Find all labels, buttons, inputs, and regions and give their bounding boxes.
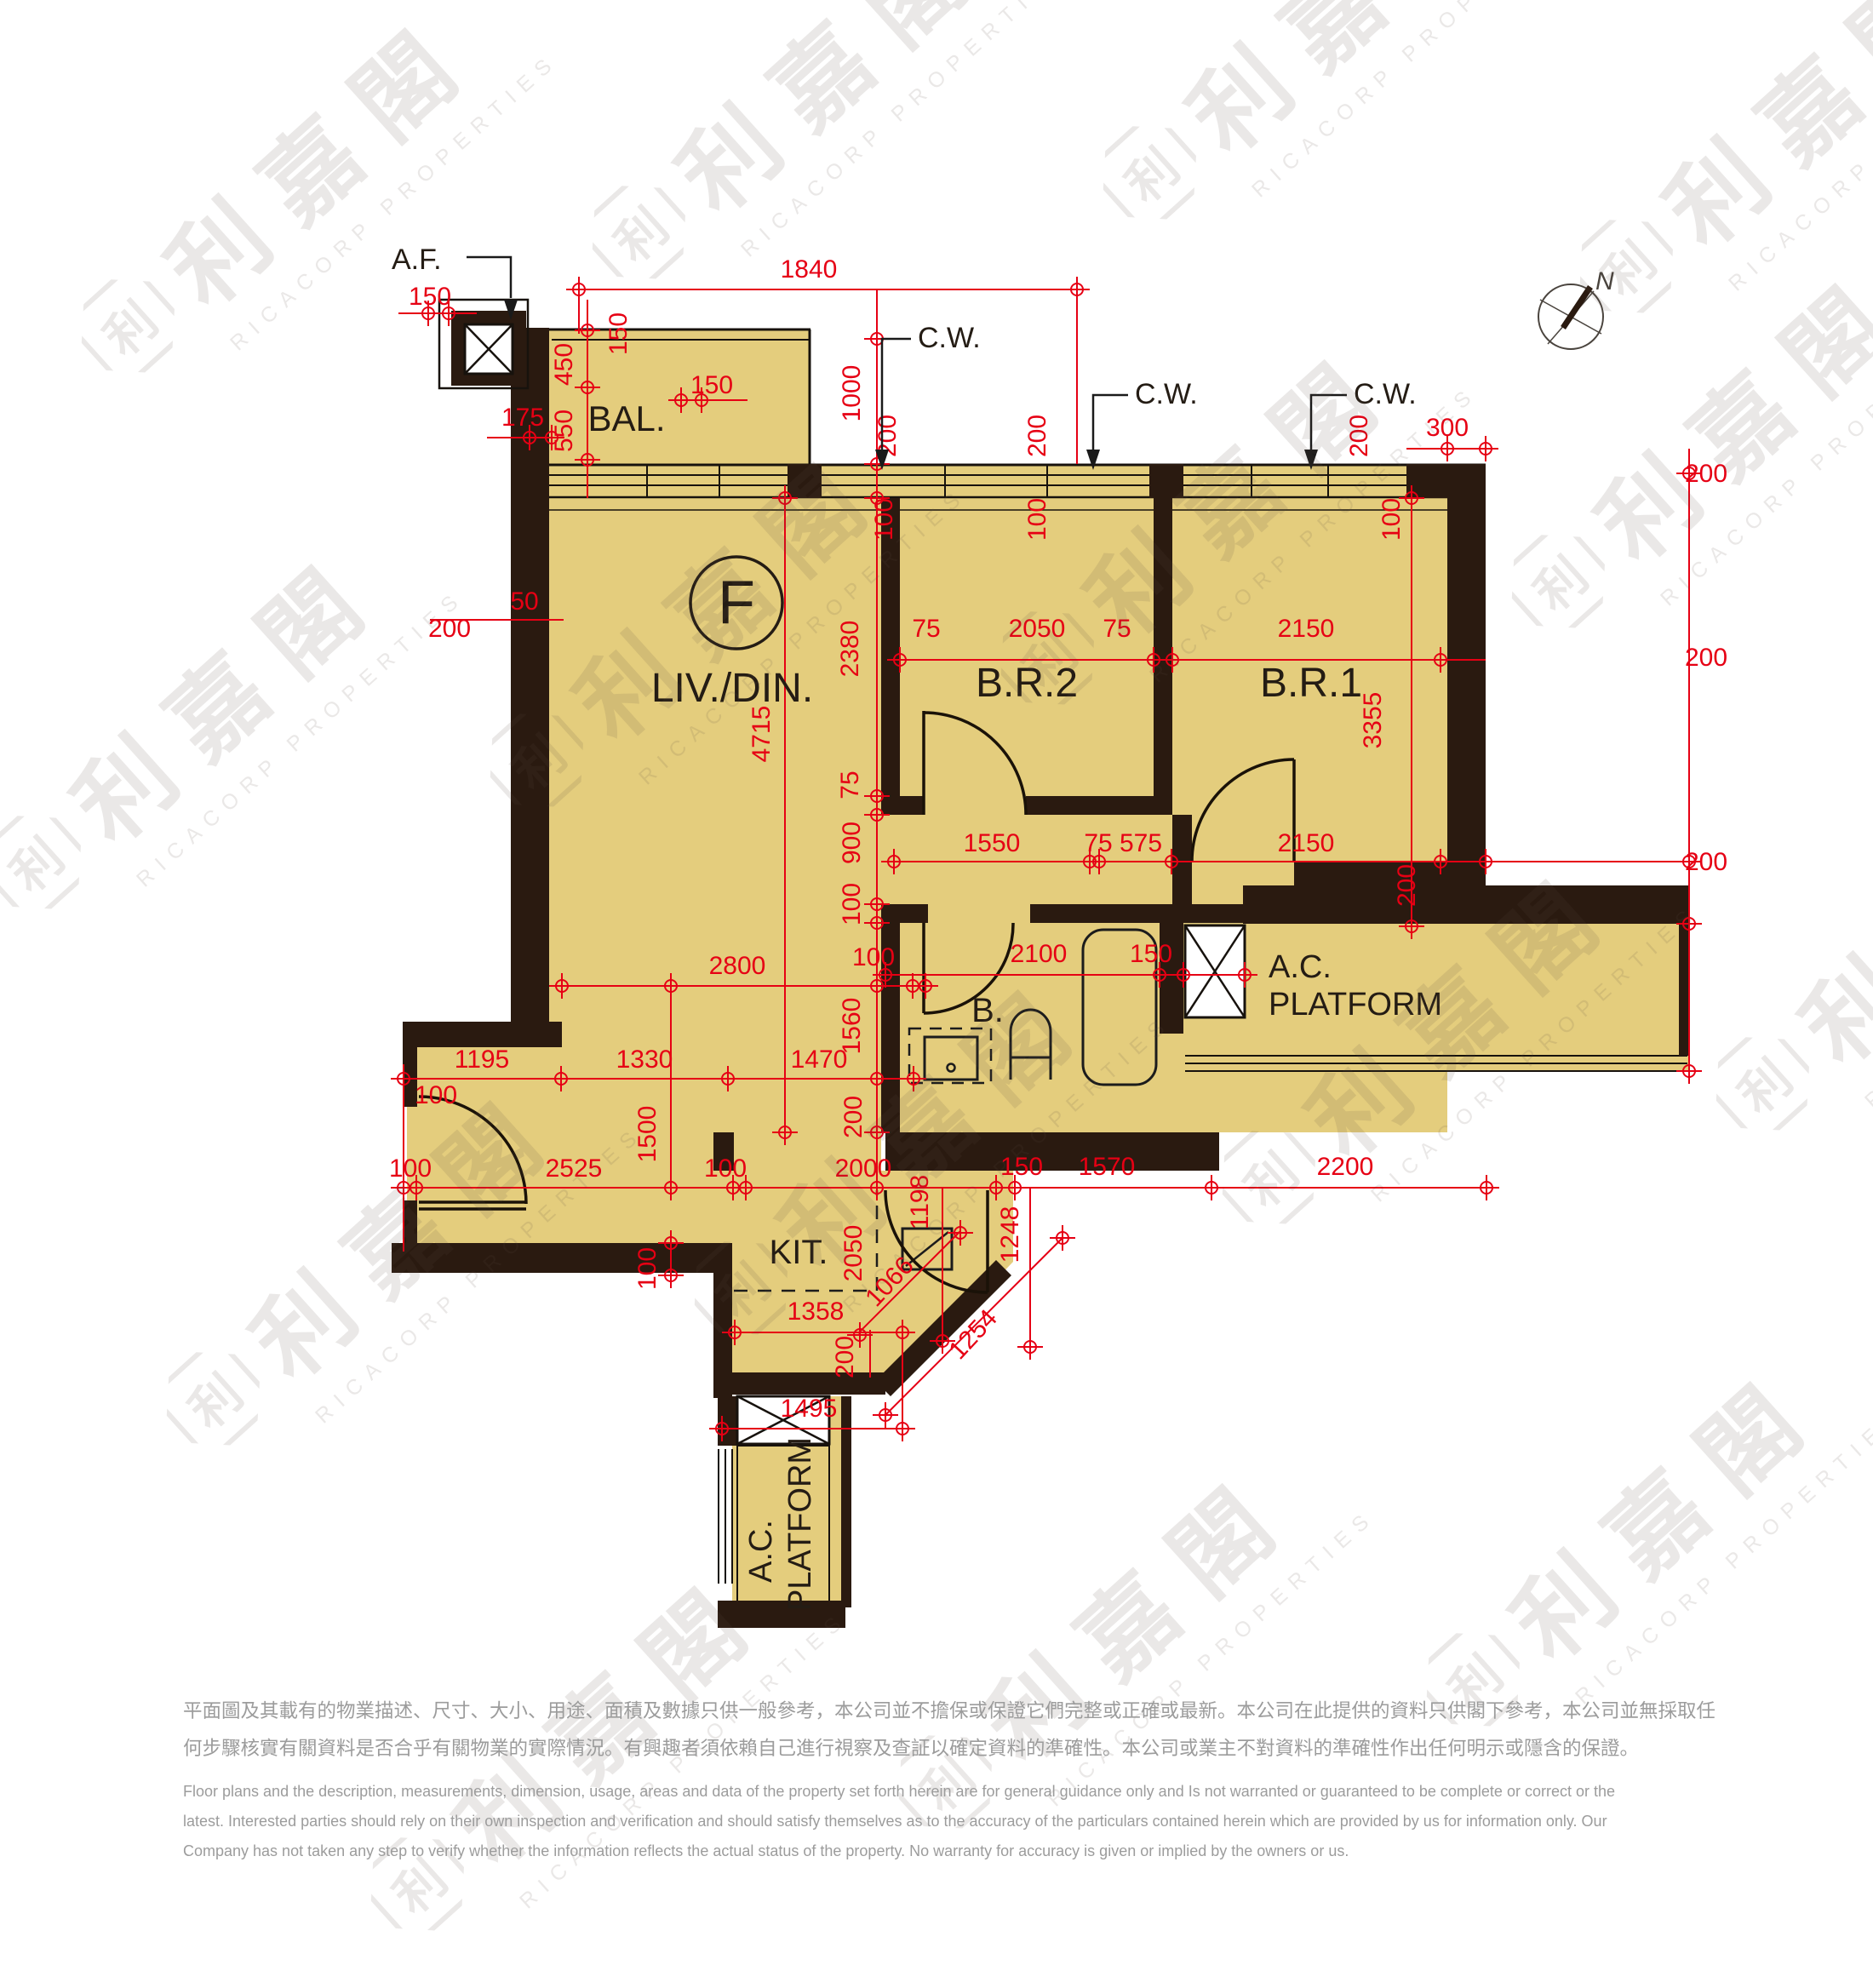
dim-label: 2100 [1011,940,1068,968]
dim-label: 1330 [616,1046,673,1074]
flat-letter: F [718,569,755,637]
cw-label-1: C.W. [918,322,981,354]
dim-label: 150 [690,371,733,399]
dim-label: 1195 [455,1046,510,1074]
dim-label: 1198 [906,1175,934,1230]
room-label-ac-right-2: PLATFORM [1269,987,1442,1023]
disclaimer-en-line2: latest. Interested parties should rely o… [183,1813,1741,1830]
room-label-br1: B.R.1 [1260,661,1362,706]
room-label-ac-bottom-2: PLATFORM [782,1437,818,1611]
disclaimer-cn-line1: 平面圖及其載有的物業描述、尺寸、大小、用途、面積及數據只供一般參考，本公司並不擔… [183,1696,1741,1723]
dim-label: 200 [1345,415,1373,457]
dim-label: 3355 [1359,692,1387,749]
dim-label: 150 [409,283,451,311]
dim-label: 150 [604,312,633,355]
dim-label: 1495 [781,1395,838,1423]
disclaimer-en-line1: Floor plans and the description, measure… [183,1783,1741,1801]
dim-label: 100 [1378,498,1406,541]
dim-label: 200 [1685,644,1727,672]
ac-unit-box-right [1185,925,1245,1017]
dim-label: 100 [838,883,866,925]
dim-label: 75 [1084,829,1112,857]
dim-label: 4715 [747,706,776,763]
dim-label: 100 [1023,498,1051,541]
dim-label: 1000 [838,365,866,422]
room-label-bathroom: B. [971,992,1004,1029]
dim-label: 450 [550,343,578,386]
cw-label-3: C.W. [1354,378,1417,410]
dim-label: 2150 [1278,829,1335,857]
dim-label: 100 [389,1154,432,1183]
room-label-living-dining: LIV./DIN. [651,666,813,711]
dim-label: 1500 [633,1106,662,1163]
room-label-balcony: BAL. [587,398,665,438]
dim-label: 2000 [835,1154,892,1183]
room-label-br2: B.R.2 [976,661,1078,706]
dim-label: 2050 [1009,615,1066,643]
room-label-ac-bottom-1: A.C. [743,1520,779,1583]
room-label-kitchen: KIT. [770,1234,828,1271]
dim-label: 200 [839,1096,868,1138]
dim-label: 100 [870,498,898,541]
dim-label: 75 [912,615,940,643]
dim-label: 2200 [1317,1153,1374,1181]
dim-label: 175 [501,404,544,432]
dim-label: 1248 [996,1206,1024,1263]
floorplan-page: { "watermark": { "logo": "利", "cn": "利嘉閣… [0,0,1873,1873]
compass-needle [1563,287,1590,328]
dim-label: 200 [1685,460,1727,488]
dim-label: 2800 [709,952,766,980]
dim-label: 200 [428,615,471,643]
dim-label: 50 [510,587,538,616]
dim-label: 75 [836,771,864,799]
dim-label: 150 [1000,1153,1043,1181]
dim-label: 100 [633,1247,662,1290]
dim-label: 1470 [791,1046,848,1074]
dim-label: 550 [550,410,578,452]
dim-label: 200 [1393,864,1421,907]
dim-label: 2525 [546,1154,603,1183]
dim-label: 200 [1023,415,1051,457]
cw-label-2: C.W. [1135,378,1198,410]
dim-label: 2150 [1278,615,1335,643]
dim-label: 1570 [1079,1153,1136,1181]
dim-label: 200 [831,1336,859,1378]
compass: N [1538,267,1614,349]
dim-label: 75 [1103,615,1131,643]
dim-label: 575 [1120,829,1162,857]
room-label-ac-right-1: A.C. [1269,949,1332,985]
dim-label: 2380 [836,621,864,678]
dim-label: 200 [1685,848,1727,876]
dim-label: 1840 [781,255,838,284]
dim-label: 900 [838,822,866,864]
dim-label: 100 [415,1081,457,1109]
disclaimer-cn-line2: 何步驟核實有關資料是否合乎有關物業的實際情況。有興趣者須依賴自己進行視察及查証以… [183,1733,1741,1761]
dim-label: 2050 [839,1225,868,1282]
dim-label: 100 [704,1154,747,1183]
dim-label: 100 [852,943,895,971]
dim-label: 1550 [964,829,1021,857]
af-label: A.F. [392,243,442,276]
north-label: N [1595,267,1614,295]
dim-label: 300 [1426,414,1469,442]
disclaimer-en-line3: Company has not taken any step to verify… [183,1842,1741,1860]
dim-label: 1358 [788,1298,845,1326]
dim-label: 150 [1130,940,1172,968]
floor-plan-svg: 150 1840 175 450 550 150 150 1000 200 10… [0,0,1873,1873]
